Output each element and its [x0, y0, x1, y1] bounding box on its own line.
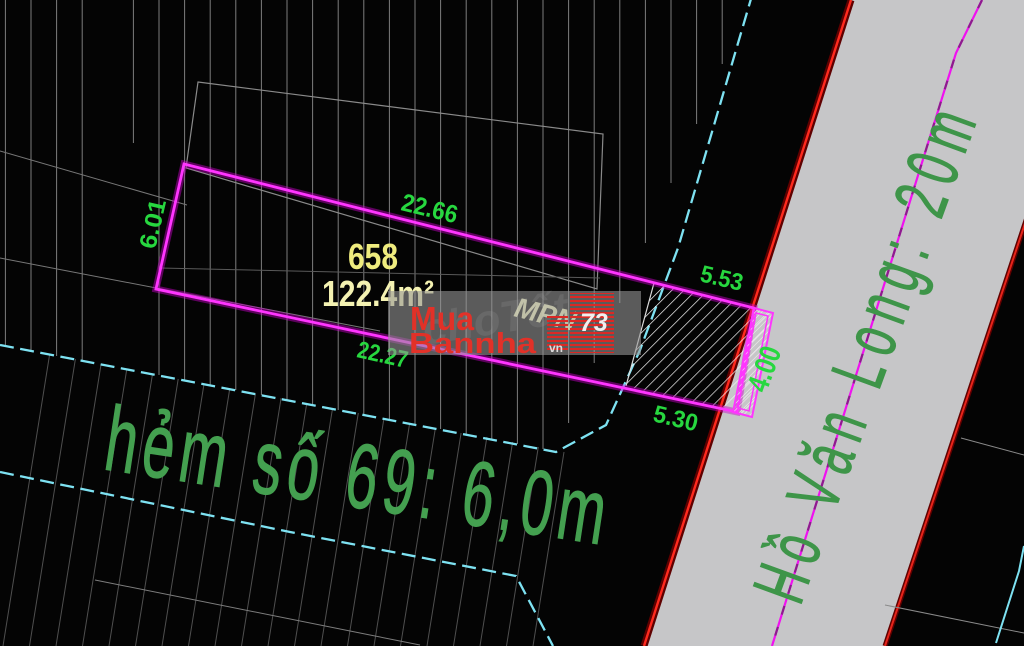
svg-text:Bannha: Bannha [409, 328, 537, 360]
svg-text:vn: vn [549, 341, 563, 355]
svg-text:658: 658 [348, 236, 398, 277]
svg-text:73: 73 [580, 309, 608, 337]
